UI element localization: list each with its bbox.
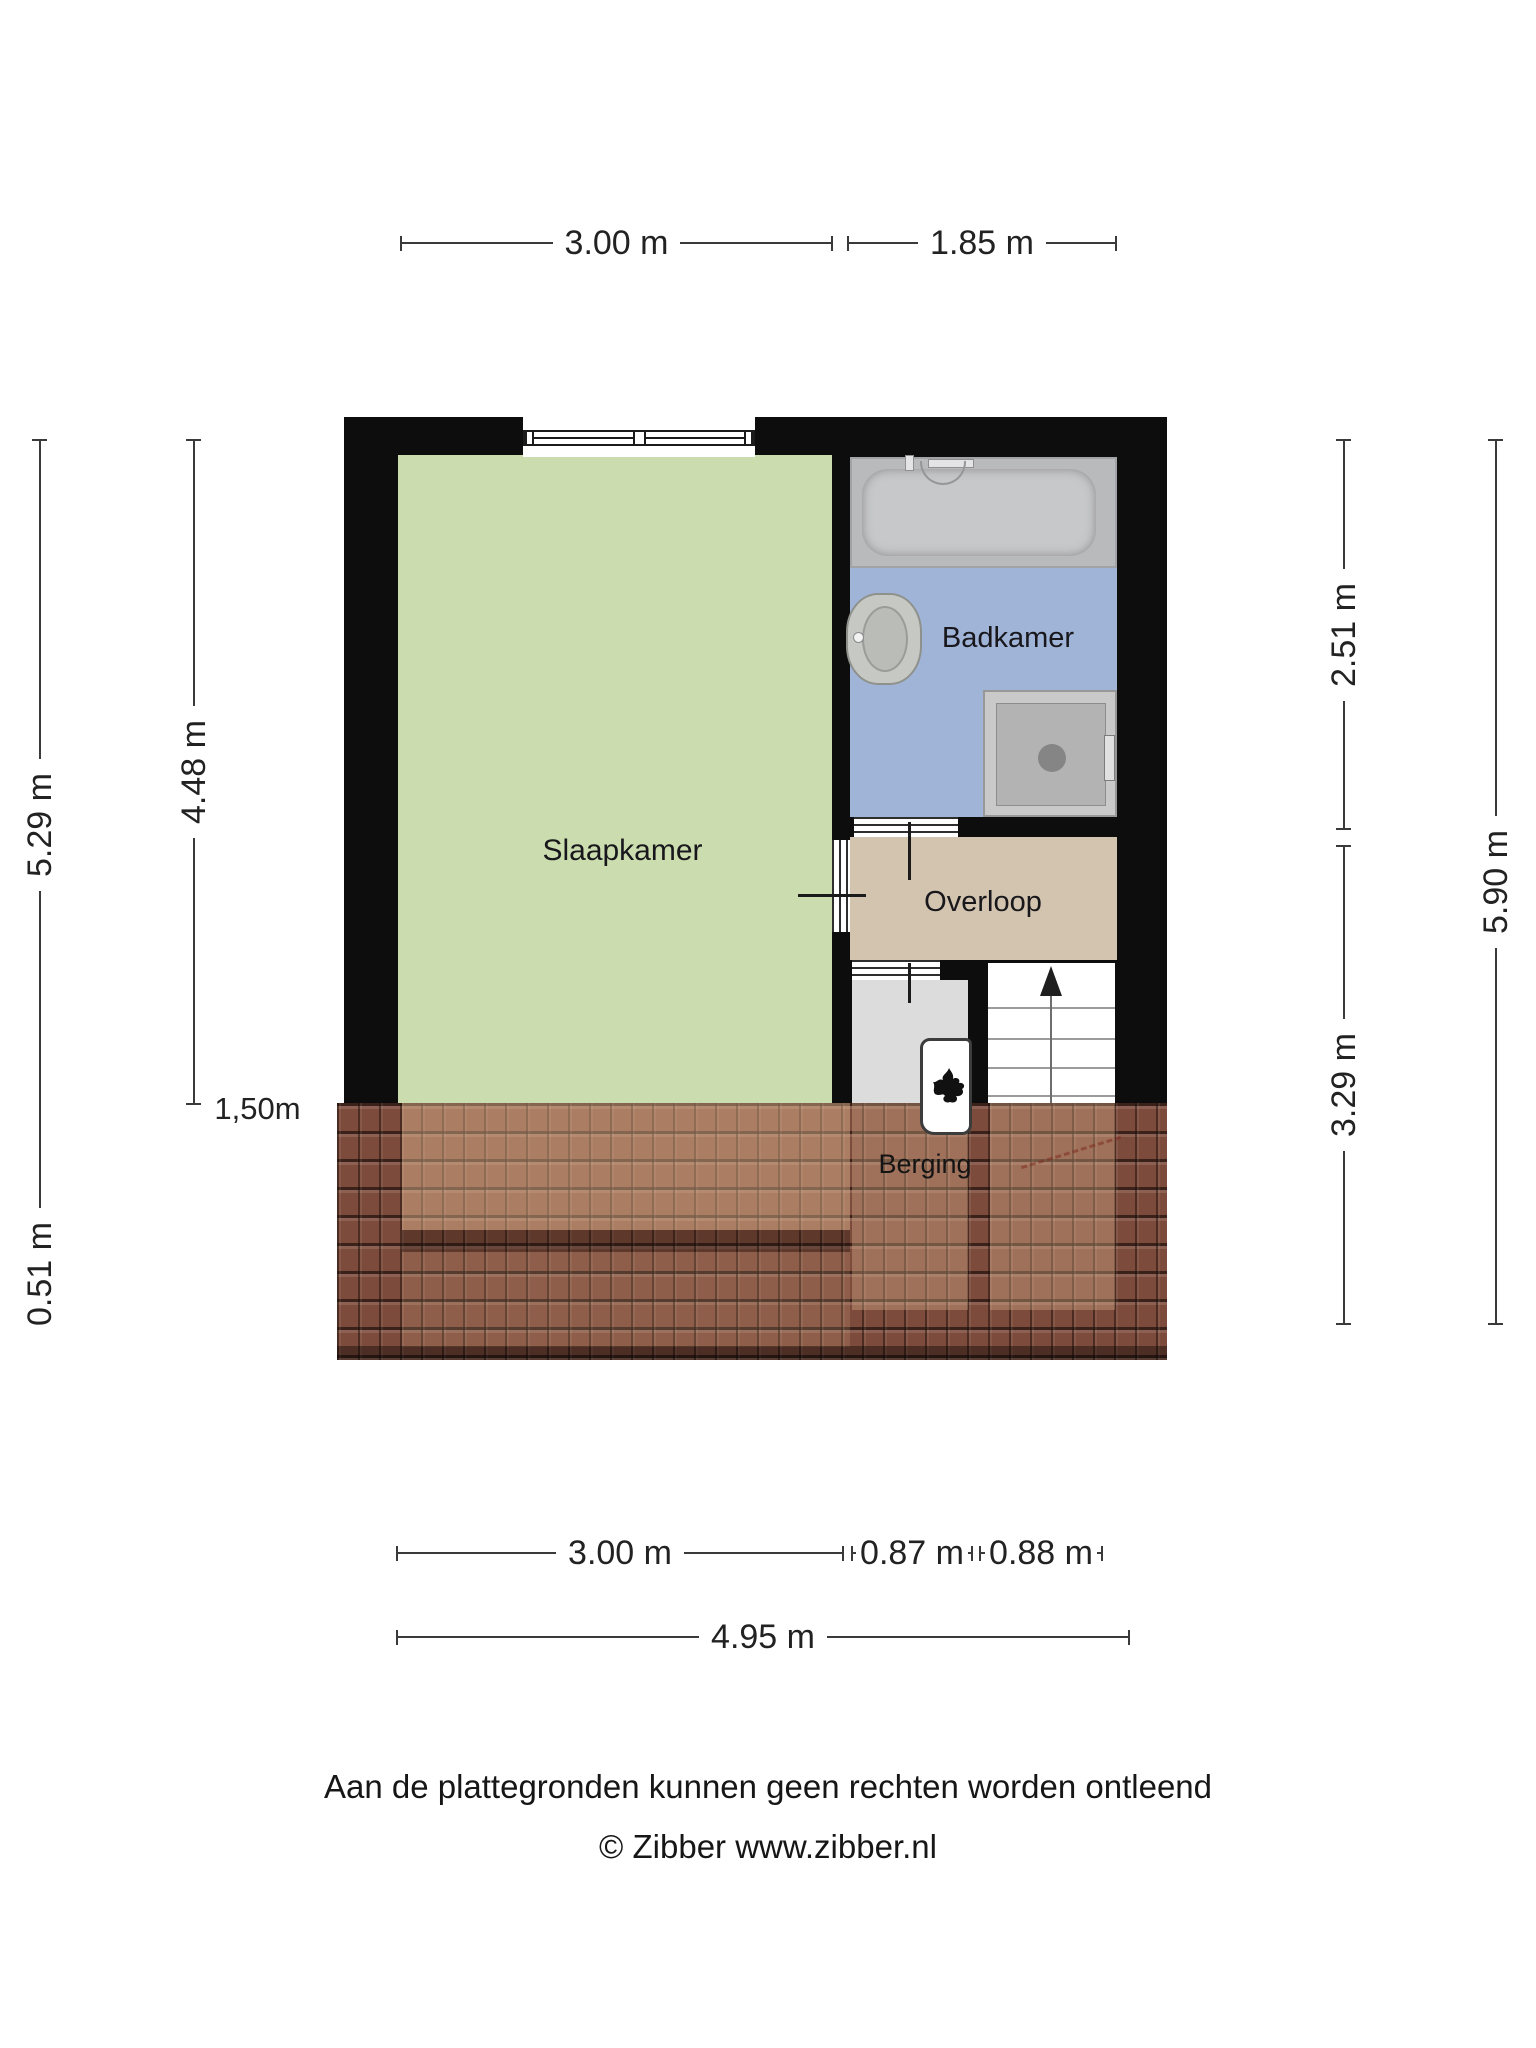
dim-tick (1128, 1630, 1130, 1645)
dim-label: 3.00 m (553, 226, 681, 260)
window-icon (523, 430, 755, 446)
dim-left-448: 4.48 m (186, 439, 202, 1105)
dim-bottom-3m: 3.00 m (396, 1545, 844, 1561)
bathtub-icon (850, 457, 1117, 568)
dim-tick (971, 1546, 973, 1561)
roof-wall-shadow-band (402, 1230, 850, 1252)
dim-line (398, 1636, 699, 1638)
roof-height-marker: 1,50m (200, 1091, 315, 1127)
copyright-text: © Zibber www.zibber.nl (0, 1828, 1536, 1866)
room-label-berging: Berging (845, 1150, 1005, 1180)
dim-label: 3.29 m (1325, 1019, 1363, 1151)
room-label-badkamer: Badkamer (898, 623, 1118, 655)
dim-label: 3.00 m (556, 1536, 684, 1570)
dim-right-590: 5.90 m (1488, 439, 1504, 1325)
dim-label: 2.51 m (1325, 569, 1363, 701)
dim-right-329: 3.29 m (1336, 845, 1352, 1325)
bath-faucet-handle (905, 455, 914, 471)
washbasin-tap (853, 632, 864, 643)
dim-line (402, 242, 553, 244)
boiler-flame-icon (931, 1066, 967, 1106)
room-label-slaapkamer: Slaapkamer (450, 834, 795, 867)
dim-tick (1115, 236, 1117, 251)
bathtub-basin (862, 469, 1096, 556)
dim-line (849, 242, 918, 244)
door-leaf-slaapkamer (798, 894, 866, 897)
dim-tick (1101, 1546, 1103, 1561)
shower-drain (1038, 744, 1066, 772)
stair-center-line (1050, 994, 1052, 1108)
dim-bottom-total: 4.95 m (396, 1629, 1130, 1645)
dim-label: 5.90 m (1477, 816, 1515, 948)
staircase-up-arrow-icon (1040, 966, 1062, 996)
window-post (633, 432, 646, 444)
dim-right-251: 2.51 m (1336, 439, 1352, 830)
dim-label: 0.87 m (856, 1536, 968, 1570)
dim-label: 1.85 m (918, 226, 1046, 260)
door-opening-slaapkamer (832, 840, 850, 932)
room-slaapkamer (398, 455, 832, 1135)
dim-label: 4.95 m (699, 1620, 827, 1654)
dim-label: 0.88 m (985, 1536, 1097, 1570)
roof-tiles-texture (337, 1103, 1167, 1360)
dim-tick (1336, 828, 1351, 830)
dim-line (680, 242, 831, 244)
roof-light-over-stairs (990, 1103, 1115, 1310)
door-leaf-badkamer (908, 822, 911, 880)
dim-left-051: 0.51 m (32, 1212, 48, 1336)
roof-light-over-slaapkamer (402, 1103, 850, 1230)
dim-bottom-088: 0.88 m (979, 1545, 1103, 1561)
dim-label: 4.48 m (175, 706, 213, 838)
staircase (988, 963, 1115, 1108)
room-label-overloop: Overloop (873, 887, 1093, 919)
window-post (525, 432, 534, 444)
dim-top-3m: 3.00 m (400, 235, 833, 251)
dim-tick (1488, 1323, 1503, 1325)
dim-left-529: 5.29 m (32, 439, 48, 1210)
door-leaf-berging (908, 963, 911, 1003)
shower-mixer (1104, 735, 1115, 781)
door-opening-badkamer (854, 817, 958, 837)
dim-top-185: 1.85 m (847, 235, 1117, 251)
dim-line (684, 1552, 842, 1554)
roof-eave-shadow (337, 1346, 1167, 1360)
dim-tick (831, 236, 833, 251)
door-opening-berging (852, 960, 940, 980)
dim-tick (842, 1546, 844, 1561)
dim-tick (1336, 1323, 1351, 1325)
roof-light-lower (402, 1252, 850, 1347)
disclaimer-text: Aan de plattegronden kunnen geen rechten… (0, 1768, 1536, 1806)
dim-label: 0.51 m (21, 1208, 59, 1340)
window-post (744, 432, 753, 444)
dim-tick (186, 1103, 201, 1105)
dim-line (827, 1636, 1128, 1638)
shower-icon (983, 690, 1117, 817)
dim-line (398, 1552, 556, 1554)
dim-label: 5.29 m (21, 759, 59, 891)
dim-line (1046, 242, 1115, 244)
dim-bottom-087: 0.87 m (851, 1545, 973, 1561)
